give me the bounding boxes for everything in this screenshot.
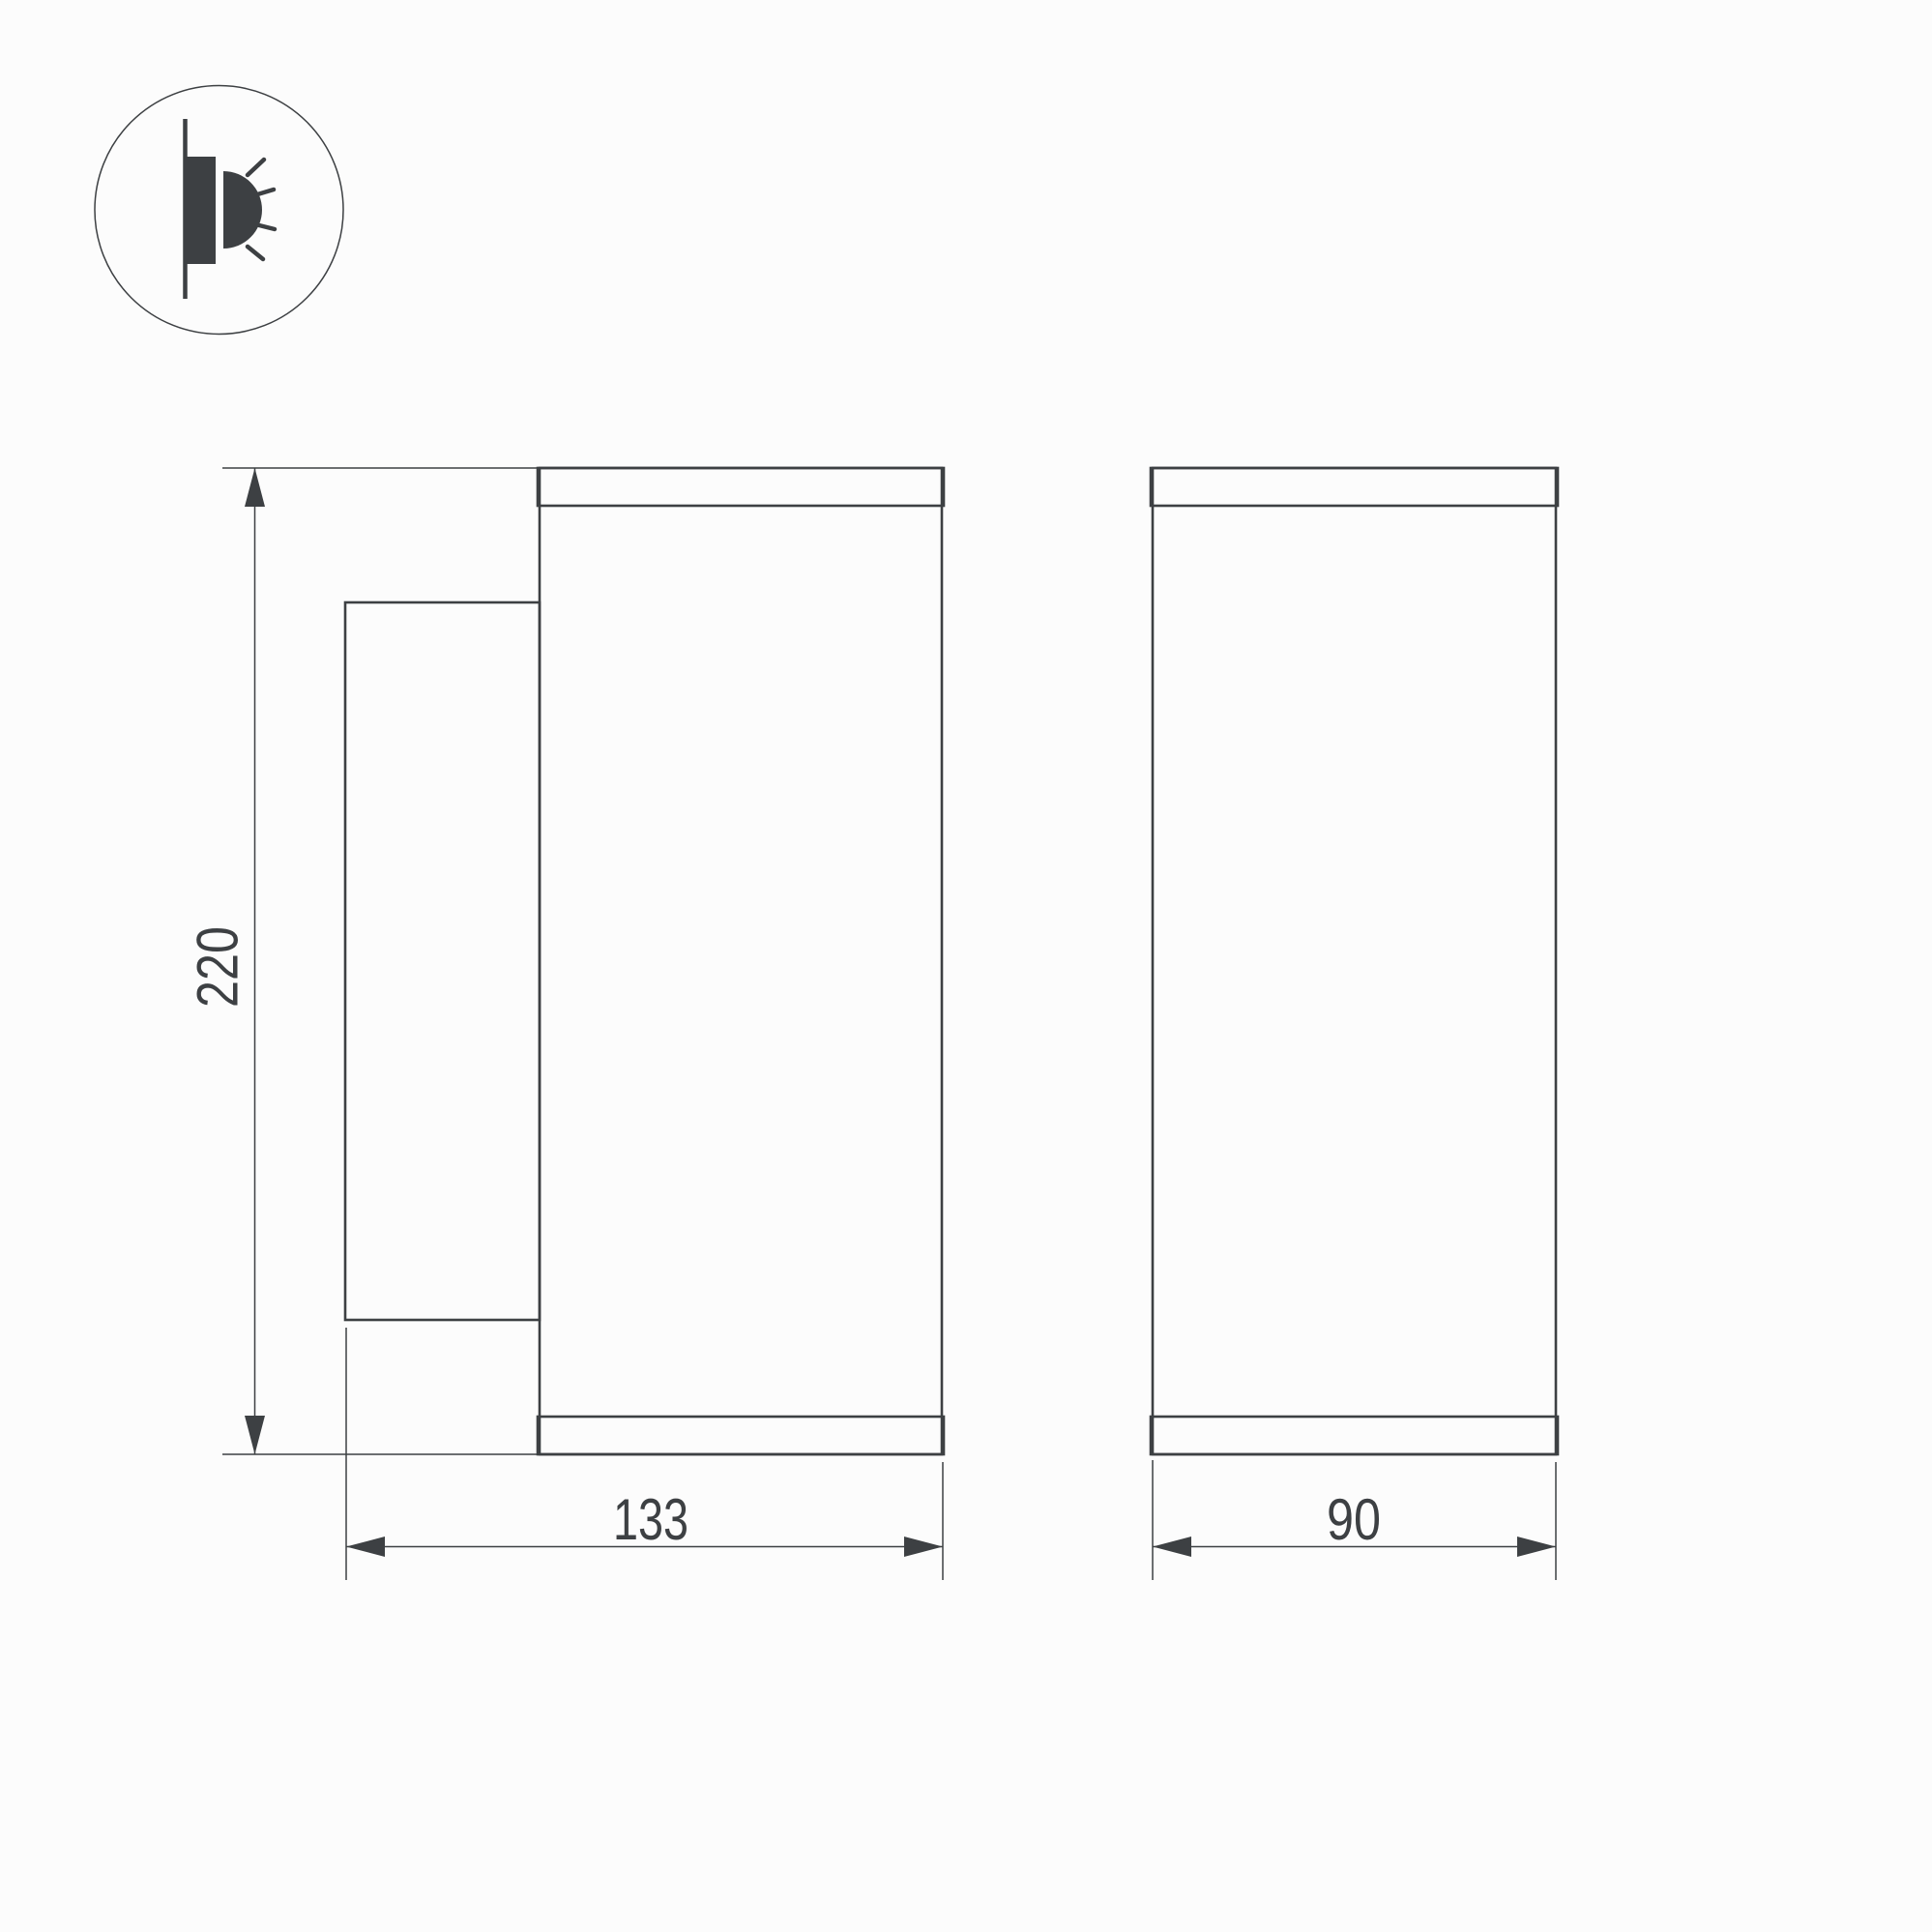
- icon-light-dome: [223, 171, 262, 249]
- front-view: [1151, 468, 1558, 1454]
- width-dimension-label: 90: [1327, 1487, 1381, 1552]
- depth-dimension-label: 133: [613, 1487, 688, 1552]
- arrowhead-left: [346, 1537, 385, 1557]
- light-ray-icon: [248, 247, 263, 259]
- arrowhead-right: [1517, 1537, 1556, 1557]
- side-view: [345, 468, 944, 1454]
- light-ray-icon: [255, 224, 275, 229]
- drawing-canvas: 220 133 90: [0, 0, 1932, 1932]
- front-view-bottom-cap: [1151, 1417, 1558, 1454]
- icon-lamp-body: [184, 157, 216, 264]
- arrowhead-left: [1153, 1537, 1191, 1557]
- technical-drawing: 220 133 90: [0, 0, 1932, 1932]
- light-ray-icon: [248, 160, 264, 175]
- side-view-body-outline: [540, 468, 942, 1454]
- width-dimension: 90: [1153, 1460, 1556, 1580]
- side-view-bottom-cap: [538, 1417, 944, 1454]
- mounting-plate-outline: [345, 602, 540, 1320]
- icon-circle-border: [95, 86, 343, 335]
- light-ray-icon: [254, 190, 274, 195]
- front-view-top-cap: [1151, 468, 1558, 506]
- arrowhead-down: [245, 1416, 265, 1454]
- height-dimension: 220: [186, 468, 540, 1454]
- wall-light-icon: [95, 86, 343, 335]
- arrowhead-up: [245, 468, 265, 507]
- arrowhead-right: [904, 1537, 943, 1557]
- front-view-body-outline: [1153, 468, 1556, 1454]
- height-dimension-label: 220: [186, 926, 250, 1008]
- side-view-top-cap: [538, 468, 944, 506]
